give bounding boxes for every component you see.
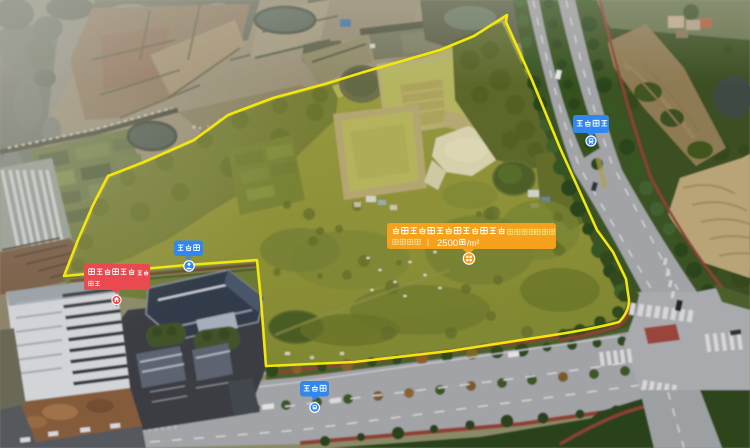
- svg-text:/m²: /m²: [467, 238, 479, 248]
- svg-text:2500: 2500: [437, 238, 458, 249]
